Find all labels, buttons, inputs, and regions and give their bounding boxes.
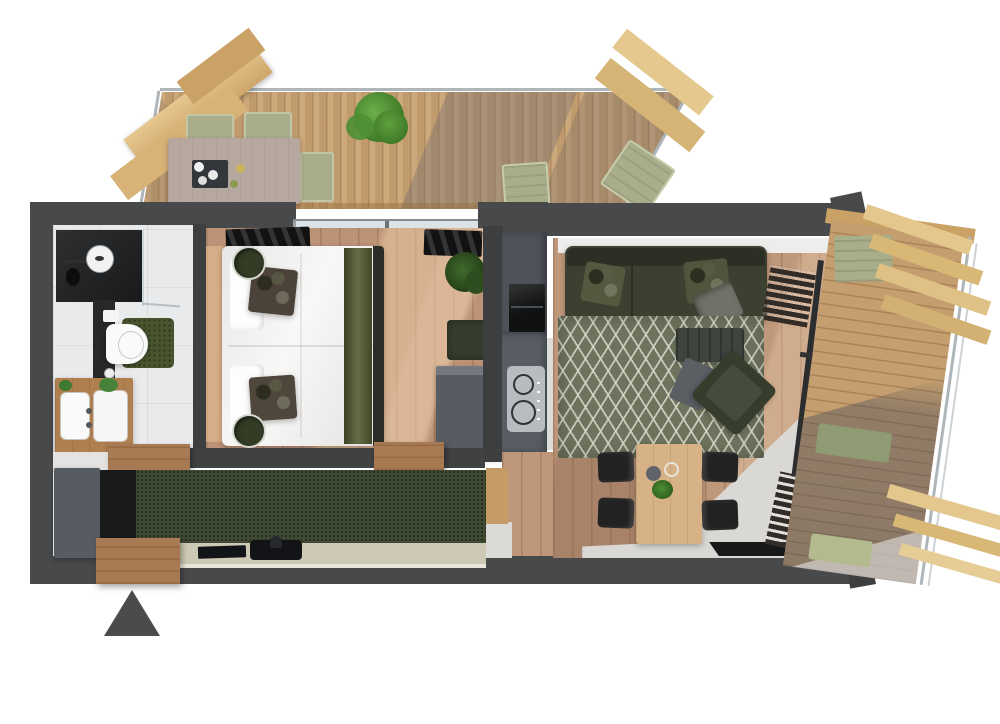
entrance-threshold	[96, 538, 180, 584]
outdoor-dining-table	[168, 138, 300, 204]
corner-sofa	[565, 246, 767, 322]
shower-head-center	[95, 256, 104, 261]
wall-bathroom-east	[193, 224, 206, 464]
potted-shrub	[348, 88, 412, 156]
entrance-arrow	[104, 590, 160, 636]
induction-hob	[507, 366, 545, 432]
bowl	[230, 180, 238, 188]
dining-chair	[701, 499, 738, 530]
wall-north-east	[545, 203, 840, 236]
toilet-cistern	[103, 310, 119, 322]
sofa-seam	[631, 266, 633, 320]
vanity-plant	[99, 378, 118, 392]
dining-chair	[701, 451, 738, 482]
shower-fixture	[66, 268, 80, 286]
hob-burner	[511, 400, 536, 425]
bed-frame-edge	[373, 246, 384, 446]
wall-west	[30, 202, 53, 584]
wall-kitchen-west	[483, 226, 503, 462]
armchair-cushion	[704, 363, 763, 422]
light-floor-door	[486, 522, 512, 558]
hob-burner	[513, 374, 534, 395]
scatter-cushion	[580, 261, 626, 307]
shrub-foliage	[374, 110, 408, 144]
round-side-table	[232, 414, 266, 448]
outdoor-chair	[300, 152, 334, 202]
slatted-side-table	[761, 264, 816, 327]
toilet-seat-line	[118, 331, 144, 359]
plate	[194, 162, 204, 172]
hob-controls	[537, 380, 540, 420]
glass-partition	[142, 230, 144, 306]
vanity-plant	[59, 380, 72, 391]
refrigerator-cabinet	[54, 468, 100, 558]
table-plant	[652, 480, 673, 499]
basin	[60, 392, 90, 440]
wall-south-a	[30, 556, 100, 584]
worktop-edge-highlight	[130, 564, 486, 568]
faucet	[86, 422, 92, 428]
bowl	[646, 466, 661, 481]
rain-shower-head	[86, 245, 114, 273]
oven-handle	[511, 306, 543, 308]
wood-threshold	[374, 442, 444, 470]
plate	[198, 176, 207, 185]
bedside-shelf	[206, 246, 223, 442]
bowl	[236, 164, 245, 173]
wood-threshold	[108, 444, 190, 472]
cabinet-shadow-gap	[100, 470, 138, 548]
worktop	[130, 543, 486, 568]
bed-runner	[344, 248, 372, 444]
faucet-arch	[270, 536, 282, 548]
toilet	[106, 324, 148, 364]
round-side-table	[232, 246, 266, 280]
dining-chair	[597, 497, 634, 528]
duvet-crease	[300, 254, 302, 438]
shrub-foliage	[346, 114, 374, 140]
plate	[664, 462, 679, 477]
plate	[208, 170, 218, 180]
built-in-oven	[509, 284, 545, 332]
floor-plan-canvas	[0, 0, 1000, 724]
green-base-cabinets	[136, 470, 486, 545]
basin	[93, 390, 128, 442]
dining-chair	[597, 451, 634, 482]
induction-hob-south	[198, 545, 246, 559]
door-frame-wood	[486, 468, 508, 524]
faucet	[86, 408, 92, 414]
sink-black	[250, 540, 302, 560]
dining-table	[636, 444, 702, 544]
